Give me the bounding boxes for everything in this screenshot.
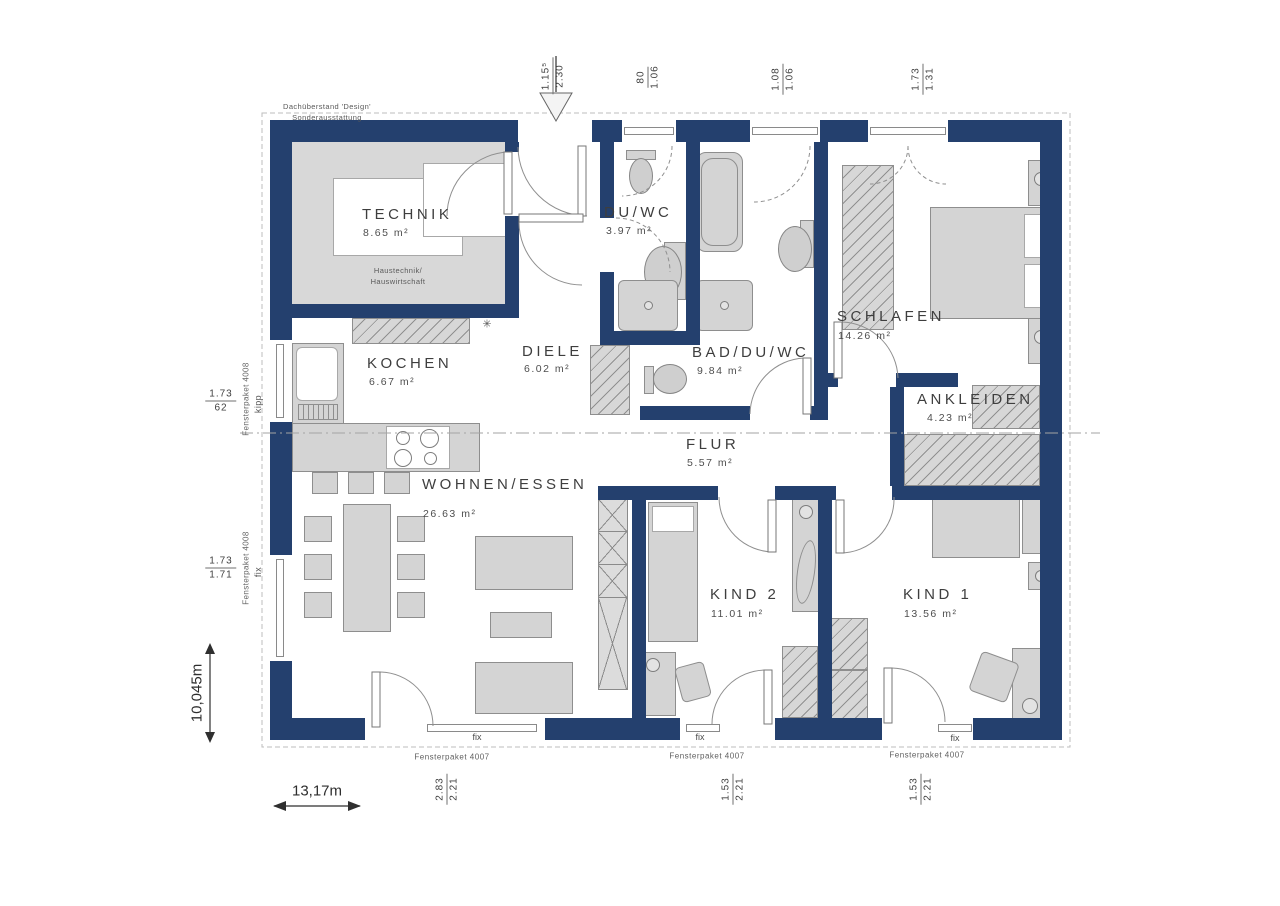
room-label-kind1: KIND 1 (903, 586, 972, 603)
floor-plan: TECHNIK 8.65 m² Haustechnik/ Hauswirtsch… (0, 0, 1280, 906)
dim-width: 1.53 (909, 773, 922, 804)
window-swing-arc-dashed (754, 146, 810, 202)
arrow-up-icon (205, 643, 215, 654)
dim-height: 62 (214, 402, 227, 414)
dim-width: 80 (636, 66, 649, 87)
window-package-label: Fensterpaket 4008 (242, 531, 251, 605)
room-area-kind1: 13.56 m² (904, 608, 957, 620)
door-swing-arc (892, 668, 945, 722)
arrow-right-icon (348, 801, 361, 811)
technik-note-line2: Hauswirtschaft (371, 277, 426, 286)
dimension-entrance: 1.15⁵ 2.30 (541, 58, 566, 95)
door-leaf (372, 672, 380, 727)
room-area-ankleiden: 4.23 m² (927, 412, 973, 424)
room-area-badduwc: 9.84 m² (697, 365, 743, 377)
dim-width: 1.15⁵ (541, 58, 554, 95)
room-label-diele: DIELE (522, 343, 583, 360)
technik-note-line1: Haustechnik/ (374, 266, 422, 275)
dim-height: 1.06 (784, 67, 796, 90)
door-leaf (519, 214, 583, 222)
room-area-kind2: 11.01 m² (711, 608, 764, 620)
dim-width: 1.08 (771, 63, 784, 94)
room-area-schlafen: 14.26 m² (838, 330, 891, 342)
room-label-schlafen: SCHLAFEN (837, 308, 945, 325)
room-area-wohnen: 26.63 m² (423, 508, 476, 520)
dimension-window: 1.73 1.31 (911, 63, 936, 94)
door-leaf (803, 358, 811, 414)
roof-note-line1: Dachüberstand 'Design' (283, 102, 371, 111)
overall-width-label: 13,17m (292, 783, 342, 800)
room-area-kochen: 6.67 m² (369, 376, 415, 388)
overall-depth-label: 10,045m (189, 664, 206, 722)
door-swing-arc (447, 152, 510, 216)
plan-linework (0, 0, 1280, 906)
room-label-badduwc: BAD/DU/WC (692, 344, 809, 361)
dim-height: 2.21 (922, 777, 934, 800)
dim-width: 1.73 (205, 389, 236, 402)
door-leaf (836, 500, 844, 553)
window-mode-label: fix (253, 567, 263, 577)
dimension-window: 1.73 62 (205, 389, 236, 414)
room-area-diele: 6.02 m² (524, 363, 570, 375)
arrow-down-icon (205, 732, 215, 743)
room-label-wohnen: WOHNEN/ESSEN (422, 476, 587, 493)
door-leaf (578, 146, 586, 216)
dim-height: 1.06 (649, 65, 661, 88)
room-label-kochen: KOCHEN (367, 355, 452, 372)
door-swing-arc (840, 497, 894, 553)
door-leaf (768, 500, 776, 552)
door-swing-arc (518, 147, 587, 216)
dim-height: 2.21 (448, 777, 460, 800)
door-swing-arc (750, 358, 804, 414)
door-swing-arc (712, 670, 765, 724)
room-area-duwc: 3.97 m² (606, 225, 652, 237)
room-label-ankleiden: ANKLEIDEN (917, 391, 1034, 408)
door-leaf (504, 152, 512, 214)
window-package-label: Fensterpaket 4007 (669, 752, 744, 761)
dimension-window: 80 1.06 (636, 65, 661, 88)
dim-height: 2.21 (734, 777, 746, 800)
arrow-left-icon (273, 801, 286, 811)
door-swing-arc (380, 672, 433, 726)
dimension-window: 1.53 2.21 (909, 773, 934, 804)
room-label-flur: FLUR (686, 436, 739, 453)
window-package-label: Fensterpaket 4008 (242, 362, 251, 436)
door-swing-arc (519, 222, 582, 285)
entrance-arrow-icon (540, 93, 572, 121)
dim-height: 1.71 (209, 569, 232, 581)
window-swing-arc-dashed (870, 146, 908, 184)
window-mode-label: fix (696, 732, 705, 742)
roof-note-line2: Sonderausstattung (292, 113, 362, 122)
dim-height: 2.30 (554, 64, 566, 87)
window-package-label: Fensterpaket 4007 (414, 753, 489, 762)
dim-width: 1.73 (911, 63, 924, 94)
window-mode-label: fix (473, 732, 482, 742)
window-swing-arc-dashed (908, 146, 946, 184)
window-package-label: Fensterpaket 4007 (889, 751, 964, 760)
door-leaf (764, 670, 772, 724)
freezer-symbol-icon: ✳ (482, 318, 491, 331)
window-mode-label: kipp (253, 395, 263, 413)
room-area-technik: 8.65 m² (363, 227, 409, 239)
room-area-flur: 5.57 m² (687, 457, 733, 469)
room-label-duwc: DU/WC (604, 204, 672, 221)
dimension-window: 2.83 2.21 (435, 773, 460, 804)
door-leaf (884, 668, 892, 723)
dim-height: 1.31 (924, 67, 936, 90)
dim-width: 2.83 (435, 773, 448, 804)
dimension-window: 1.73 1.71 (205, 556, 236, 581)
dimension-window: 1.08 1.06 (771, 63, 796, 94)
dim-width: 1.73 (205, 556, 236, 569)
room-label-kind2: KIND 2 (710, 586, 779, 603)
dim-width: 1.53 (721, 773, 734, 804)
window-mode-label: fix (951, 733, 960, 743)
window-swing-arc-dashed (622, 146, 672, 196)
door-swing-arc (719, 497, 774, 552)
room-label-technik: TECHNIK (362, 206, 452, 223)
dimension-window: 1.53 2.21 (721, 773, 746, 804)
